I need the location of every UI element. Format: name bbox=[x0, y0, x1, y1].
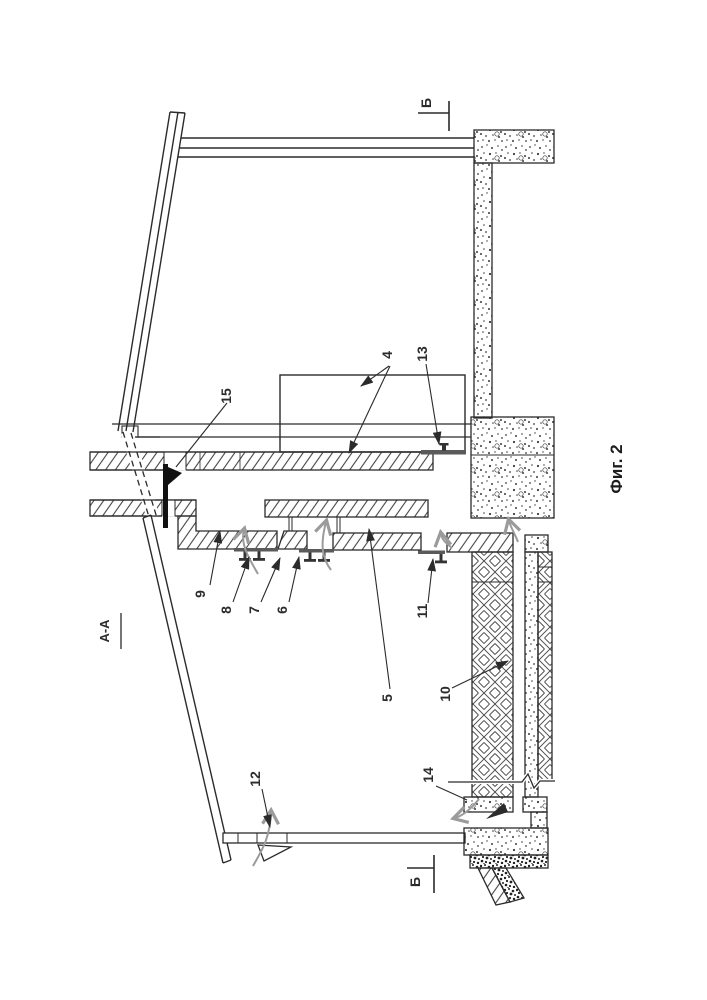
ceiling-lines bbox=[178, 138, 474, 157]
sectional-drawing: 4 5 6 7 8 9 10 11 12 13 14 15 Б Б А-А Фи… bbox=[0, 0, 707, 1000]
pad-right bbox=[523, 797, 547, 812]
label-14: 14 bbox=[420, 767, 436, 783]
view-title: А-А bbox=[97, 613, 121, 649]
section-mark-b-top-text: Б bbox=[418, 98, 434, 108]
flow-arrow-step-mid bbox=[323, 522, 331, 570]
leader-12 bbox=[262, 789, 270, 827]
tier-panel bbox=[333, 533, 421, 550]
foundation-assembly bbox=[464, 797, 548, 905]
figure-canvas: 4 5 6 7 8 9 10 11 12 13 14 15 Б Б А-А Фи… bbox=[0, 0, 707, 1000]
label-4: 4 bbox=[379, 351, 395, 359]
t-bolts bbox=[239, 552, 447, 564]
outer-wall-header bbox=[525, 535, 548, 552]
label-7: 7 bbox=[246, 606, 262, 614]
right-wall-block bbox=[471, 417, 554, 518]
leader-14 bbox=[436, 786, 467, 800]
label-13: 13 bbox=[414, 346, 430, 362]
leader-4b bbox=[349, 366, 390, 453]
right-wall-assembly bbox=[447, 130, 554, 797]
part-labels: 4 5 6 7 8 9 10 11 12 13 14 15 bbox=[192, 346, 453, 787]
leader-6 bbox=[289, 557, 299, 602]
panel-4-outline bbox=[280, 375, 465, 452]
step-pocket bbox=[278, 531, 307, 549]
label-10: 10 bbox=[437, 686, 453, 702]
view-title-text: А-А bbox=[97, 619, 112, 643]
pad-right-step bbox=[531, 812, 547, 828]
slab-2-right bbox=[265, 500, 428, 517]
label-8: 8 bbox=[218, 606, 234, 614]
label-15: 15 bbox=[218, 388, 234, 404]
joint-plate-a bbox=[234, 548, 278, 552]
label-11: 11 bbox=[414, 603, 430, 618]
step-band bbox=[178, 516, 277, 549]
leader-8 bbox=[233, 557, 249, 602]
label-9: 9 bbox=[192, 590, 208, 598]
foundation-footing bbox=[464, 828, 548, 855]
ventilated-wall-10 bbox=[472, 552, 513, 797]
floor-slab bbox=[223, 833, 465, 861]
caption: Фиг. 2 bbox=[607, 444, 626, 493]
section-mark-b-top: Б bbox=[418, 98, 449, 131]
wall-head-block bbox=[447, 533, 513, 552]
tilted-wall-upper bbox=[118, 112, 185, 432]
leader-11 bbox=[428, 559, 433, 603]
footing-dark-band bbox=[470, 855, 548, 868]
leader-7 bbox=[261, 558, 280, 602]
outer-wall-stipple-layer bbox=[525, 552, 538, 797]
section-mark-b-bottom-text: Б bbox=[407, 877, 423, 887]
right-wall-cap bbox=[474, 130, 554, 163]
section-mark-b-bottom: Б bbox=[407, 855, 434, 893]
joint-plate-b bbox=[299, 549, 334, 553]
tilted-wall-lower bbox=[143, 515, 231, 863]
bolt-13 bbox=[442, 445, 446, 451]
label-12: 12 bbox=[247, 771, 263, 787]
joint-plate-c bbox=[418, 551, 445, 555]
outer-wall bbox=[538, 552, 552, 782]
leader-13 bbox=[426, 364, 439, 444]
label-leaders bbox=[176, 364, 508, 827]
joint-plate-top bbox=[421, 450, 466, 455]
label-6: 6 bbox=[274, 606, 290, 614]
right-wall-upper bbox=[474, 163, 492, 418]
leader-5 bbox=[369, 529, 390, 689]
seating-deck-lines bbox=[112, 424, 471, 437]
label-5: 5 bbox=[379, 694, 395, 702]
